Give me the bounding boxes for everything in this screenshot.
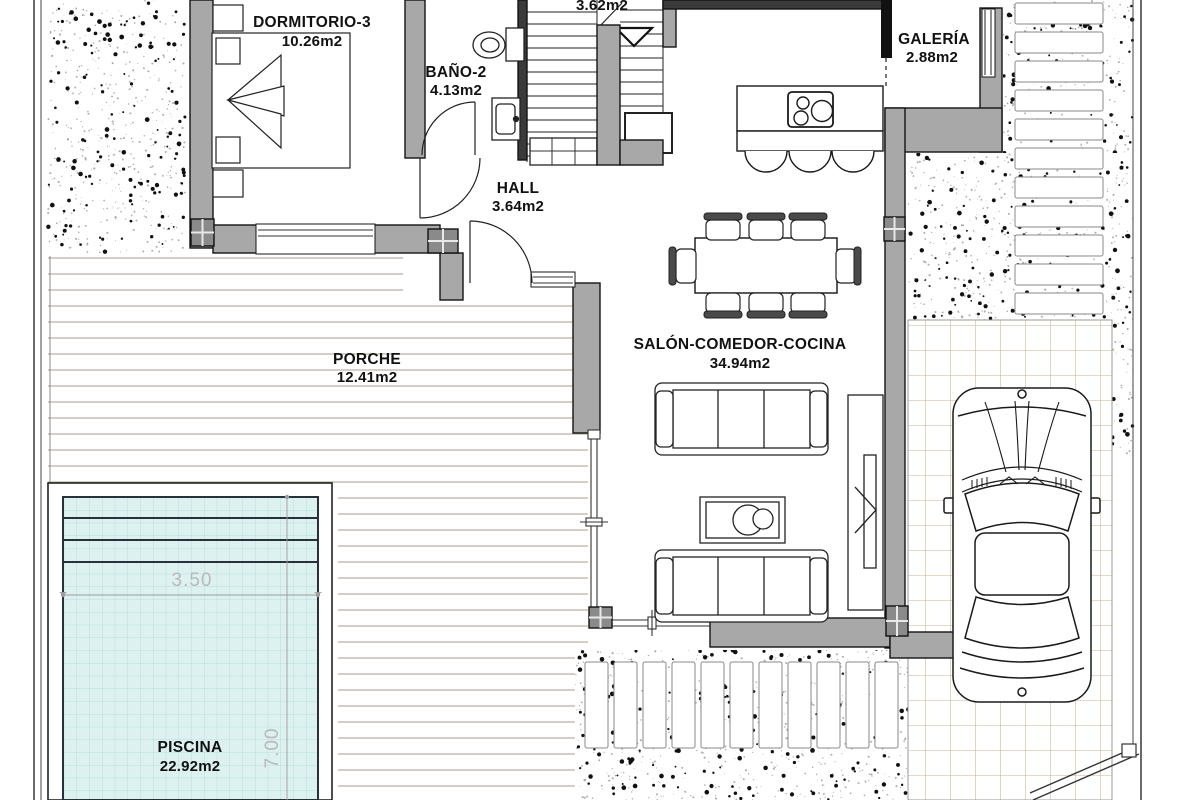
stepping-stone bbox=[1015, 148, 1103, 169]
galeria-window bbox=[982, 9, 995, 77]
stepping-stone bbox=[846, 662, 869, 748]
label-porche-area: 12.41m2 bbox=[337, 369, 398, 386]
car-front-emblem bbox=[1018, 390, 1026, 398]
column-marker bbox=[428, 229, 458, 253]
floor-plan-page: DORMITORIO-3 10.26m2 BAÑO-2 4.13m2 HALL … bbox=[0, 0, 1200, 800]
label-dormitorio-area: 10.26m2 bbox=[282, 33, 343, 50]
stepping-stone bbox=[643, 662, 666, 748]
kitchen-counter-edge bbox=[737, 131, 883, 151]
stepping-stone bbox=[1015, 264, 1103, 285]
stepping-stone bbox=[1015, 293, 1103, 314]
hall-window bbox=[531, 272, 575, 287]
label-bano-area: 4.13m2 bbox=[430, 82, 482, 99]
column-marker bbox=[191, 219, 214, 246]
stepping-stone bbox=[1015, 61, 1103, 82]
toilet-bowl-inner bbox=[481, 38, 499, 52]
label-salon: SALÓN-COMEDOR-COCINA bbox=[634, 335, 847, 353]
bedroom-bath-wall bbox=[405, 0, 425, 158]
stepping-stone bbox=[1015, 90, 1103, 111]
stepping-stone bbox=[788, 662, 811, 748]
stepping-stone bbox=[759, 662, 782, 748]
label-hall-area: 3.64m2 bbox=[492, 198, 544, 215]
sofa bbox=[655, 550, 828, 622]
nightstand bbox=[213, 5, 243, 31]
dining-chair bbox=[836, 247, 861, 285]
label-salon-area: 34.94m2 bbox=[710, 355, 771, 372]
stepping-stone bbox=[701, 662, 724, 748]
sofa bbox=[655, 383, 828, 455]
stepping-stone bbox=[1015, 119, 1103, 140]
stairs-lower-wall bbox=[620, 140, 663, 165]
nightstand bbox=[213, 170, 243, 197]
label-bano: BAÑO-2 bbox=[425, 63, 486, 81]
stepping-stone bbox=[1015, 177, 1103, 198]
dining-chair bbox=[704, 213, 742, 240]
stepping-stone bbox=[1015, 235, 1103, 256]
hall-closet bbox=[530, 138, 597, 165]
dining-chair bbox=[747, 213, 785, 240]
stepping-stone bbox=[730, 662, 753, 748]
stepping-stone bbox=[875, 662, 898, 748]
hall-step-wall bbox=[440, 253, 463, 300]
dining-chair bbox=[704, 293, 742, 318]
stepping-stone bbox=[585, 662, 608, 748]
cooktop-burner bbox=[812, 101, 833, 122]
dining-chair bbox=[747, 293, 785, 318]
cooktop-burner bbox=[794, 111, 808, 125]
gate-post bbox=[1122, 744, 1136, 757]
dining-chair bbox=[789, 213, 827, 240]
label-piscina: PISCINA bbox=[158, 739, 223, 756]
porch-north-wall bbox=[213, 225, 258, 253]
stairs-divider-wall bbox=[597, 25, 620, 165]
pillow bbox=[216, 137, 240, 163]
pool-width-dimension: 3.50 bbox=[172, 570, 213, 591]
sofa-armrest bbox=[656, 391, 673, 447]
dining-table bbox=[695, 238, 837, 293]
sink-faucet bbox=[514, 117, 519, 122]
label-hall: HALL bbox=[497, 180, 540, 197]
decor-bowl bbox=[753, 509, 773, 529]
label-escalera-area: 3.62m2 bbox=[576, 0, 628, 14]
tv-unit bbox=[848, 395, 883, 610]
salon-east-wall bbox=[885, 108, 905, 648]
stepping-stones-bottom bbox=[585, 662, 898, 748]
sofa-armrest bbox=[810, 391, 827, 447]
stepping-stone bbox=[1015, 32, 1103, 53]
stepping-stone bbox=[672, 662, 695, 748]
column-marker bbox=[589, 607, 612, 628]
pool-length-dimension: 7.00 bbox=[262, 728, 283, 769]
bedroom-window bbox=[256, 224, 375, 254]
dining-chair bbox=[789, 293, 827, 318]
car-rear-emblem bbox=[1018, 688, 1026, 696]
label-porche: PORCHE bbox=[333, 351, 401, 368]
stepping-stone bbox=[1015, 3, 1103, 24]
sink-basin bbox=[496, 104, 515, 134]
sofa-armrest bbox=[656, 558, 673, 614]
label-dormitorio: DORMITORIO-3 bbox=[253, 14, 371, 31]
stepping-stones-right bbox=[1015, 3, 1103, 314]
floor-plan-drawing: DORMITORIO-3 10.26m2 BAÑO-2 4.13m2 HALL … bbox=[0, 0, 1200, 800]
coffee-table bbox=[700, 497, 785, 543]
car bbox=[944, 388, 1100, 702]
column-marker bbox=[884, 217, 905, 241]
cooktop-burner bbox=[797, 97, 809, 109]
pillow bbox=[216, 38, 240, 64]
column-marker bbox=[886, 606, 908, 636]
stepping-stone bbox=[817, 662, 840, 748]
kitchen-island bbox=[737, 86, 883, 172]
label-piscina-area: 22.92m2 bbox=[160, 758, 221, 775]
dining-chair bbox=[669, 247, 696, 285]
stepping-stone bbox=[1015, 206, 1103, 227]
label-galeria: GALERÍA bbox=[898, 31, 970, 48]
stepping-stone bbox=[614, 662, 637, 748]
bedroom-west-wall bbox=[190, 0, 213, 248]
sofa-armrest bbox=[810, 558, 827, 614]
salon-west-column bbox=[573, 283, 600, 433]
label-galeria-area: 2.88m2 bbox=[906, 49, 958, 66]
toilet-tank bbox=[506, 28, 524, 61]
salon-north-wall bbox=[663, 0, 882, 9]
galeria-door-jamb bbox=[881, 0, 892, 58]
